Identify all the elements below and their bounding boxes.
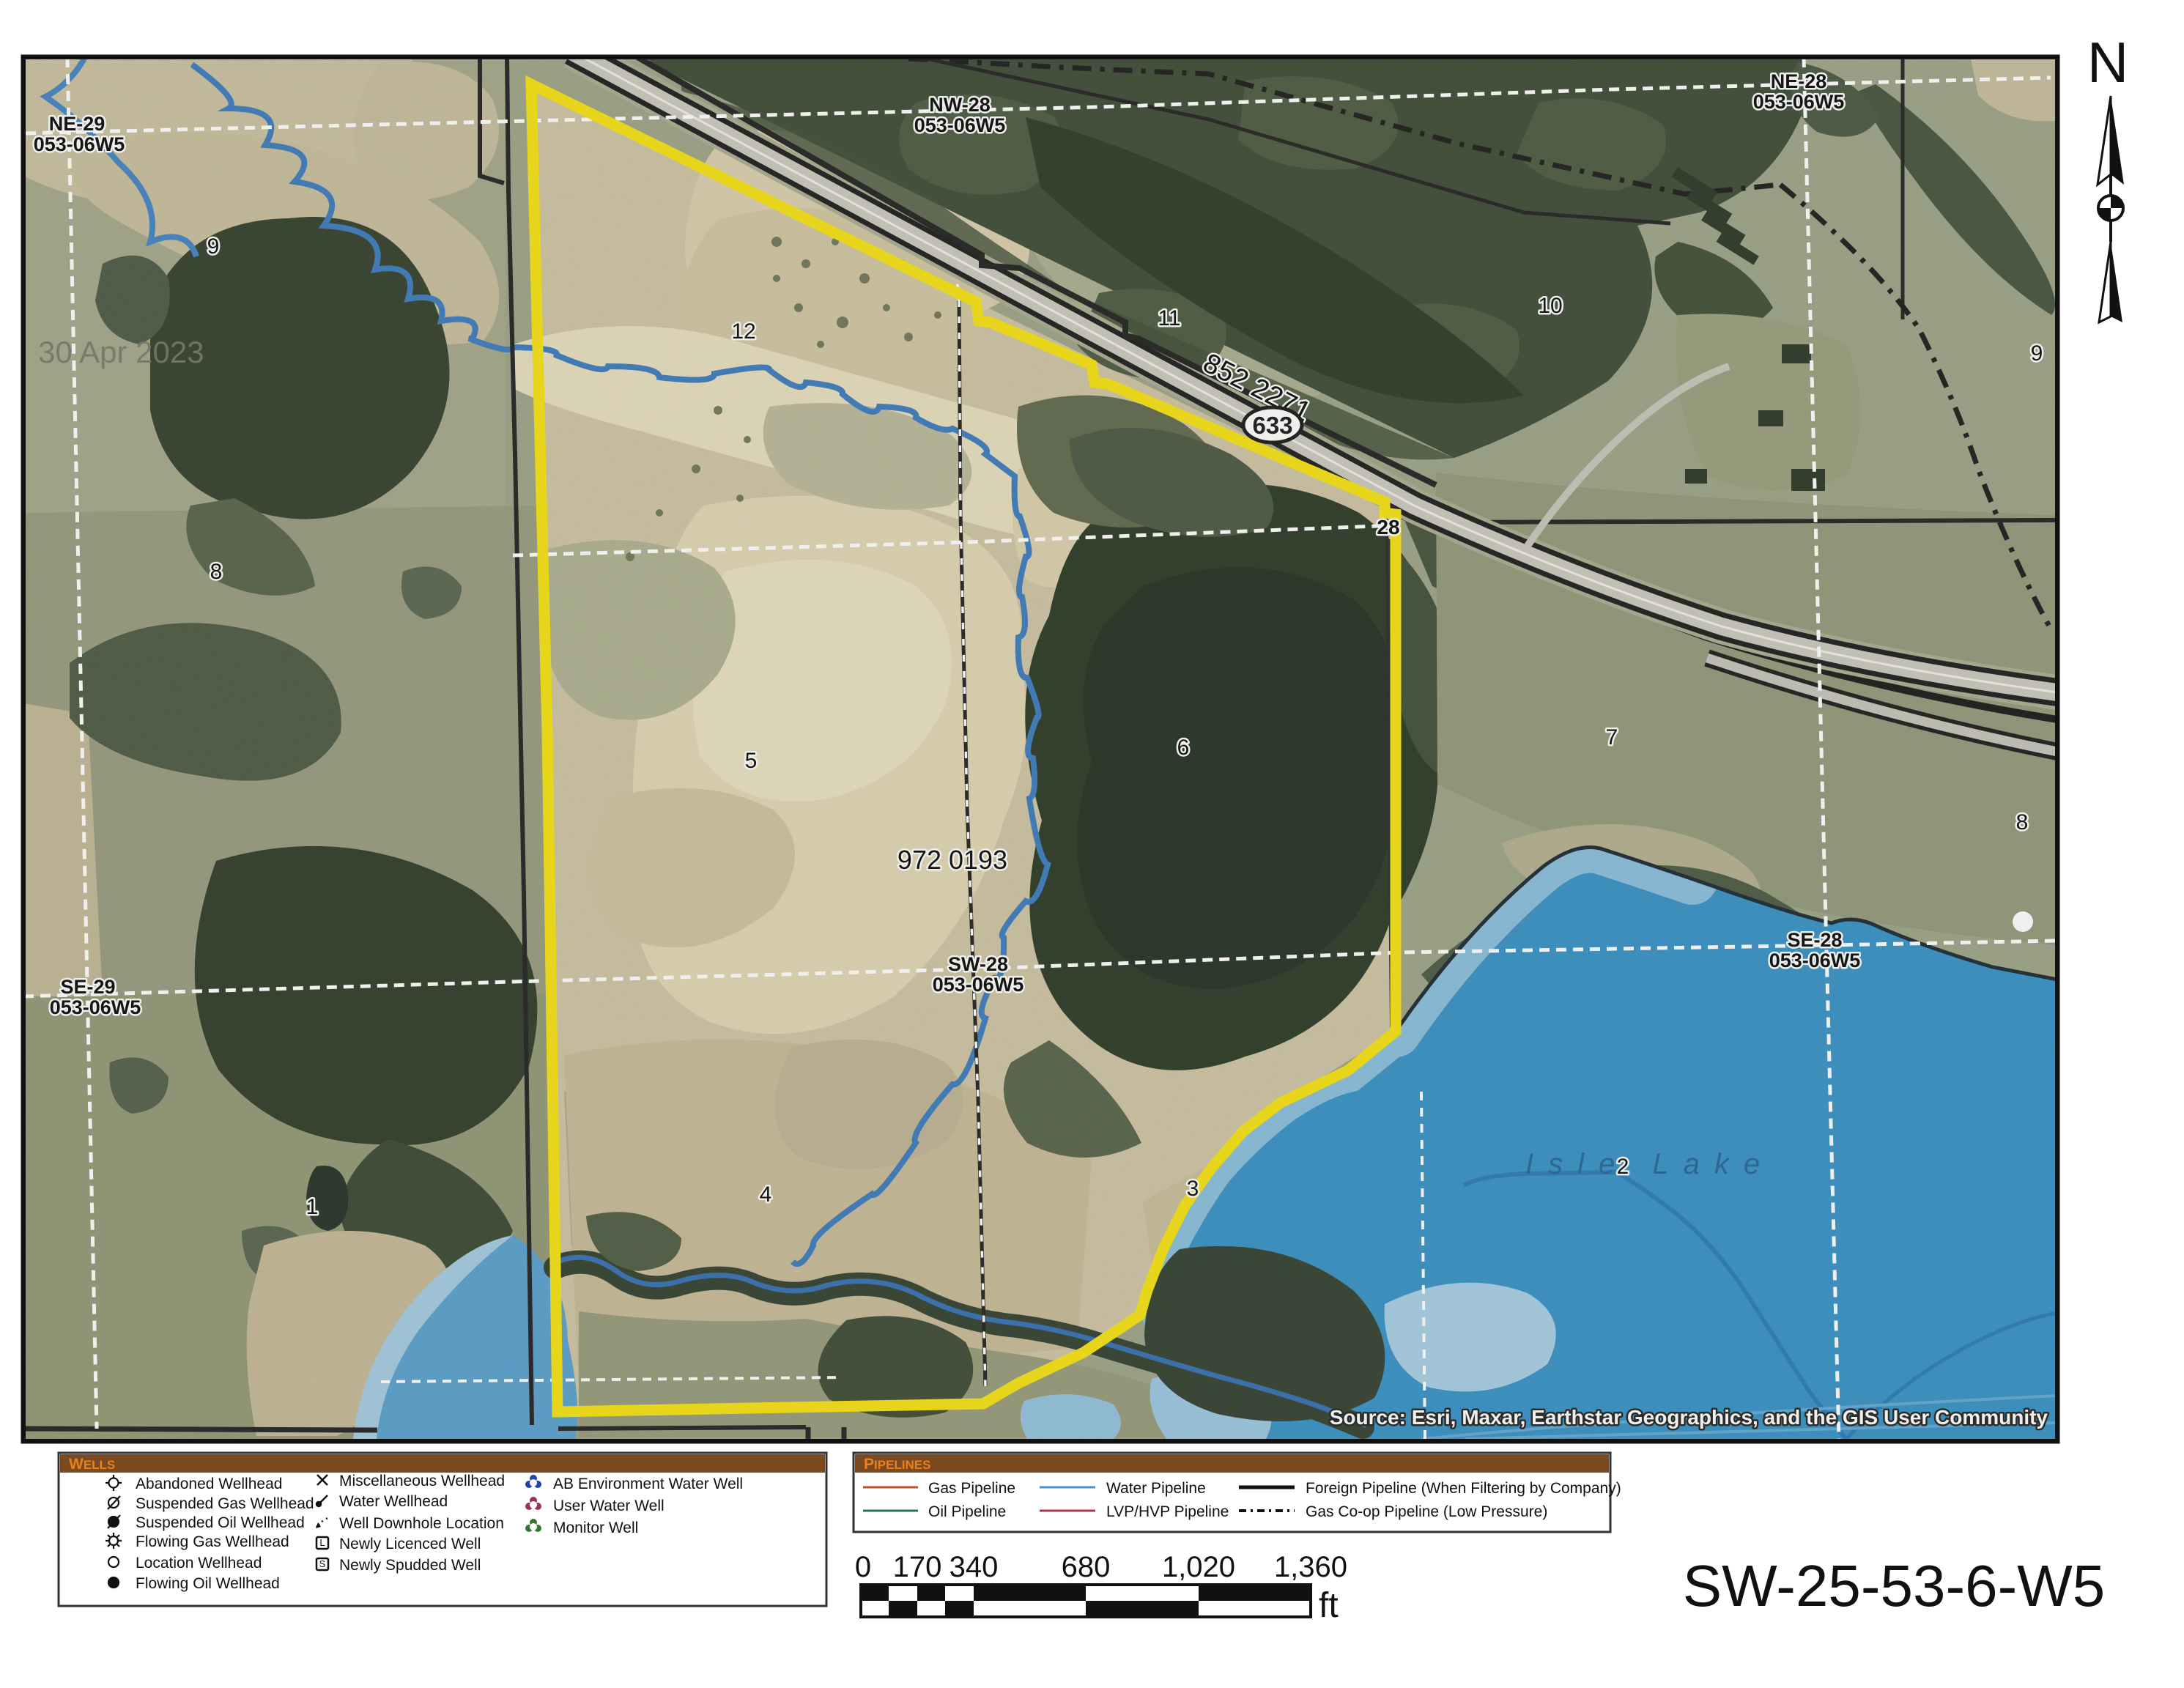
svg-text:ft: ft <box>1319 1586 1339 1625</box>
svg-text:SW-25-53-6-W5: SW-25-53-6-W5 <box>1683 1553 2105 1618</box>
svg-text:N: N <box>2087 30 2128 95</box>
svg-text:0: 0 <box>855 1551 871 1583</box>
svg-text:Miscellaneous Wellhead: Miscellaneous Wellhead <box>339 1473 505 1489</box>
svg-text:170: 170 <box>893 1551 942 1583</box>
svg-text:Suspended Gas Wellhead: Suspended Gas Wellhead <box>136 1495 314 1512</box>
svg-text:Newly Licenced Well: Newly Licenced Well <box>339 1536 481 1552</box>
svg-text:Monitor Well: Monitor Well <box>553 1519 638 1536</box>
svg-text:Water Pipeline: Water Pipeline <box>1106 1480 1206 1497</box>
svg-text:680: 680 <box>1062 1551 1111 1583</box>
svg-text:Gas Pipeline: Gas Pipeline <box>928 1480 1015 1497</box>
svg-text:Gas Co-op Pipeline (Low Pressu: Gas Co-op Pipeline (Low Pressure) <box>1306 1503 1547 1520</box>
svg-text:Well Downhole Location: Well Downhole Location <box>339 1515 504 1532</box>
svg-text:Flowing Oil Wellhead: Flowing Oil Wellhead <box>136 1575 280 1592</box>
svg-text:1,360: 1,360 <box>1274 1551 1347 1583</box>
svg-text:Flowing Gas Wellhead: Flowing Gas Wellhead <box>136 1533 289 1550</box>
svg-text:Location Wellhead: Location Wellhead <box>136 1555 262 1572</box>
svg-text:Foreign Pipeline (When Filteri: Foreign Pipeline (When Filtering by Comp… <box>1306 1480 1621 1497</box>
svg-text:LVP/HVP Pipeline: LVP/HVP Pipeline <box>1106 1503 1229 1520</box>
svg-text:S: S <box>319 1558 326 1569</box>
svg-text:PIPELINES: PIPELINES <box>864 1456 930 1473</box>
svg-text:Suspended Oil Wellhead: Suspended Oil Wellhead <box>136 1514 305 1531</box>
svg-text:Abandoned Wellhead: Abandoned Wellhead <box>136 1476 282 1492</box>
svg-text:WELLS: WELLS <box>69 1456 115 1473</box>
svg-text:Oil Pipeline: Oil Pipeline <box>928 1503 1006 1520</box>
svg-text:AB Environment Water Well: AB Environment Water Well <box>553 1476 743 1492</box>
svg-text:L: L <box>319 1537 325 1548</box>
svg-text:340: 340 <box>950 1551 999 1583</box>
svg-text:1,020: 1,020 <box>1162 1551 1235 1583</box>
svg-text:User Water Well: User Water Well <box>553 1498 665 1514</box>
svg-text:Newly Spudded Well: Newly Spudded Well <box>339 1557 481 1574</box>
svg-text:Water Wellhead: Water Wellhead <box>339 1493 448 1510</box>
